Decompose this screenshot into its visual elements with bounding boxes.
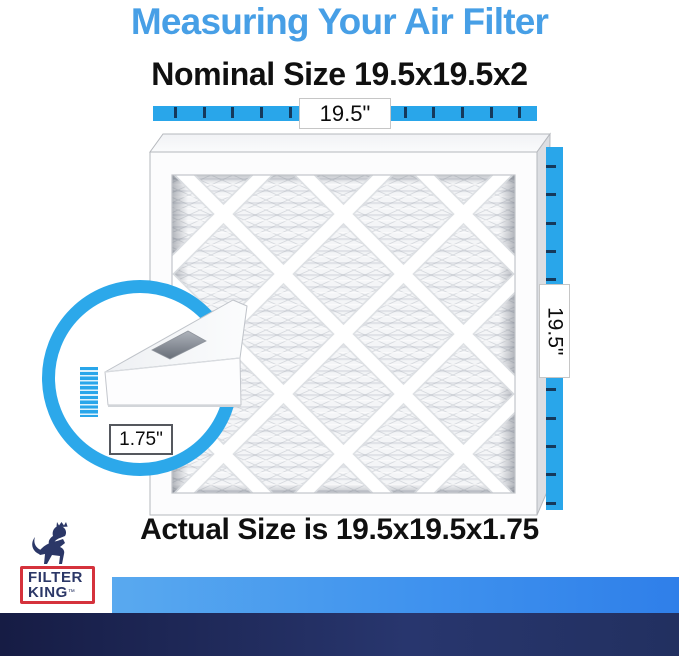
height-measurement-label: 19.5" xyxy=(539,284,570,378)
bottom-bar-light-blue xyxy=(112,577,679,613)
ruler-tick xyxy=(231,107,234,118)
ruler-tick xyxy=(546,278,556,281)
ruler-tick xyxy=(289,107,292,118)
filter-top-face xyxy=(150,134,550,152)
ruler-tick xyxy=(404,107,407,118)
page-title: Measuring Your Air Filter xyxy=(0,1,679,43)
ruler-tick xyxy=(490,107,493,118)
ruler-tick xyxy=(546,222,556,225)
ruler-tick xyxy=(546,193,556,196)
depth-ruler xyxy=(80,367,98,417)
ruler-tick xyxy=(546,417,556,420)
depth-measurement-label: 1.75" xyxy=(109,424,173,455)
ruler-tick xyxy=(432,107,435,118)
ruler-tick xyxy=(546,473,556,476)
filter-king-logo: FILTER KING™ xyxy=(20,566,95,604)
ruler-tick xyxy=(518,107,521,118)
ruler-tick xyxy=(546,250,556,253)
ruler-tick xyxy=(203,107,206,118)
ruler-tick xyxy=(546,165,556,168)
bottom-bar-navy xyxy=(0,613,679,656)
trademark-symbol: ™ xyxy=(68,589,76,596)
actual-size-heading: Actual Size is 19.5x19.5x1.75 xyxy=(0,513,679,547)
product-infographic: Measuring Your Air Filter Nominal Size 1… xyxy=(0,0,679,656)
ruler-tick xyxy=(546,445,556,448)
ruler-tick xyxy=(546,502,556,505)
ruler-tick xyxy=(461,107,464,118)
ruler-tick xyxy=(546,388,556,391)
logo-line2: KING xyxy=(28,584,68,601)
lion-icon xyxy=(26,521,82,568)
ruler-tick xyxy=(174,107,177,118)
ruler-tick xyxy=(260,107,263,118)
nominal-size-heading: Nominal Size 19.5x19.5x2 xyxy=(0,56,679,93)
width-measurement-label: 19.5" xyxy=(299,98,391,129)
